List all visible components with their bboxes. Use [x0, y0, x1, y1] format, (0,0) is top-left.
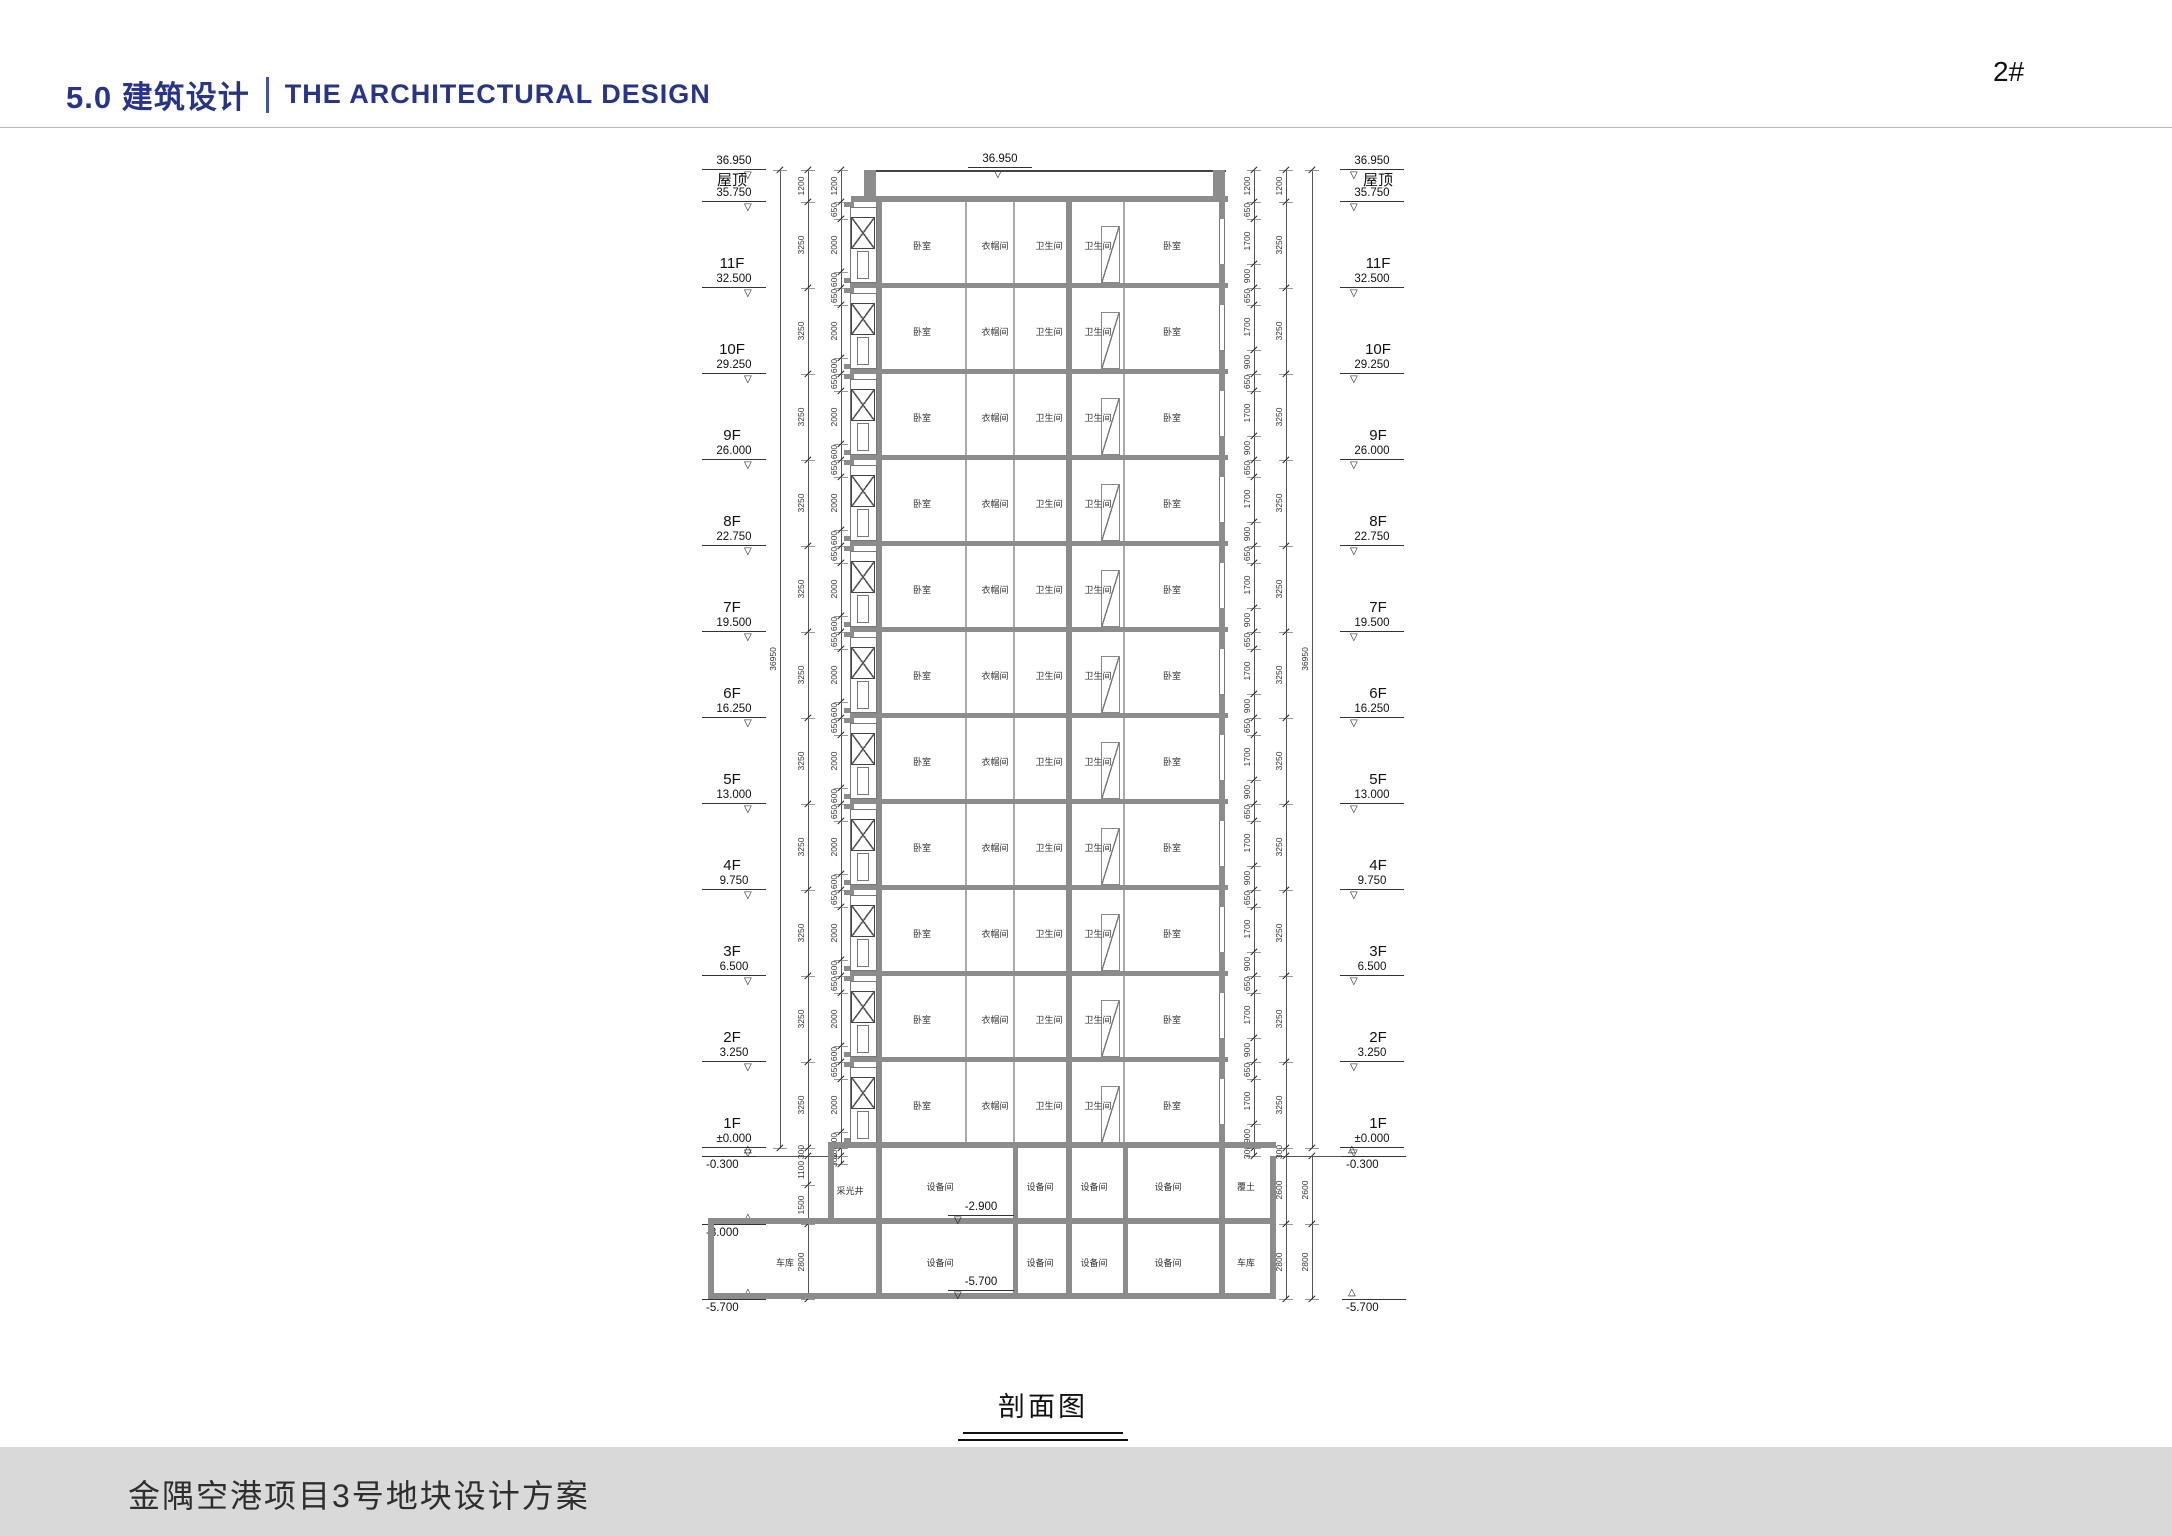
- room-label: 卧室: [913, 1013, 931, 1026]
- level-triangle-icon: ▽: [744, 375, 752, 385]
- level-elevation-left: 9.750: [702, 874, 766, 890]
- sheet-number: 2#: [1993, 56, 2024, 88]
- dim-right-inner-value: 1700: [1242, 748, 1252, 767]
- dim-left-floor-value: 1500: [796, 1195, 806, 1214]
- floor-name-right: 2F: [1346, 1029, 1410, 1046]
- level-triangle-icon: ▽: [1350, 289, 1358, 299]
- dim-left-inner-value: 2000: [829, 494, 839, 513]
- floor-slab: [850, 713, 1228, 718]
- level-triangle-icon: ▽: [744, 805, 752, 815]
- dim-left-floor-value: 3250: [796, 407, 806, 426]
- dim-right-inner-value: 1700: [1242, 662, 1252, 681]
- project-title: 金隅空港项目3号地块设计方案: [128, 1471, 590, 1517]
- dim-right-floor-value: 3250: [1274, 1009, 1284, 1028]
- dim-left-floor-value: 1100: [796, 1161, 806, 1179]
- level-elevation-left: 26.000: [702, 444, 766, 460]
- room-label: 车库: [1237, 1256, 1255, 1269]
- room-label: 卧室: [913, 927, 931, 940]
- dim-left-inner-value: 650: [829, 547, 839, 561]
- bay-window-glass: [851, 561, 875, 593]
- partition-wall: [1013, 288, 1015, 369]
- core-wall: [1066, 804, 1072, 890]
- room-label: 卧室: [913, 841, 931, 854]
- exterior-wall-right: [1219, 1038, 1225, 1062]
- dim-right-inner-value: 900: [1242, 871, 1252, 885]
- partition-wall: [1123, 804, 1125, 885]
- floor-slab: [850, 283, 1228, 288]
- dim-right-total-below-value: 2600: [1300, 1181, 1310, 1200]
- level-triangle-icon: ▽: [744, 203, 752, 213]
- dim-left-inner-value: 2000: [829, 322, 839, 341]
- floor-name-left: 11F: [700, 255, 764, 272]
- dim-left-inner-value: 600: [829, 359, 839, 373]
- partition-wall: [965, 804, 967, 885]
- bay-window-glass: [851, 905, 875, 937]
- room-label: 卫生间: [1084, 497, 1111, 510]
- floor-name-right: 6F: [1346, 685, 1410, 702]
- dim-left-floor-line: [808, 170, 809, 1299]
- partition-wall: [1013, 718, 1015, 799]
- floor-name-right: 11F: [1346, 255, 1410, 272]
- bathroom-door: [1101, 226, 1120, 283]
- window-right: [1219, 391, 1225, 436]
- exterior-wall-right: [1219, 866, 1225, 890]
- dim-left-floor-value: 2800: [796, 1252, 806, 1271]
- dim-right-inner-value: 1700: [1242, 920, 1252, 939]
- room-label: 卫生间: [1084, 583, 1111, 596]
- section-title-cn: 5.0 建筑设计: [66, 72, 250, 117]
- dim-right-inner-value: 650: [1242, 203, 1252, 217]
- partition-wall: [1013, 460, 1015, 541]
- drawing-caption: 剖面图: [958, 1385, 1128, 1441]
- room-label: 卫生间: [1035, 927, 1062, 940]
- room-label: 设备间: [1026, 1180, 1053, 1193]
- window-right: [1219, 563, 1225, 608]
- dim-right-inner-line: [1254, 170, 1255, 1156]
- exterior-wall-right: [1219, 976, 1225, 993]
- bay-window-glass: [851, 303, 875, 335]
- room-label: 卧室: [1163, 411, 1181, 424]
- dim-right-inner-value: 1700: [1242, 404, 1252, 423]
- bathroom-door: [1101, 742, 1120, 799]
- exterior-wall-right: [1219, 264, 1225, 288]
- core-wall: [1066, 546, 1072, 632]
- partition-wall: [1013, 374, 1015, 455]
- dim-left-inner-value: 650: [829, 461, 839, 475]
- room-label: 卫生间: [1084, 755, 1111, 768]
- dim-left-inner-value: 600: [829, 961, 839, 975]
- dim-left-floor-value: 3250: [796, 751, 806, 770]
- caption-underline-2: [958, 1439, 1128, 1441]
- header-rule: [0, 127, 2172, 128]
- dim-left-inner-value: 650: [829, 633, 839, 647]
- floor-name-left: 4F: [700, 857, 764, 874]
- core-wall: [1066, 202, 1072, 288]
- window-right: [1219, 993, 1225, 1038]
- level-elevation-left: 35.750: [702, 186, 766, 202]
- dim-right-floor-value: 3250: [1274, 579, 1284, 598]
- ground-floor-slab: [828, 1142, 1276, 1148]
- room-label: 衣帽间: [981, 1013, 1008, 1026]
- dim-left-floor-value: 3250: [796, 1095, 806, 1114]
- basement-b2-floor-slab: [708, 1293, 1276, 1299]
- bathroom-door: [1101, 398, 1120, 455]
- ground-line-left: [756, 1156, 828, 1158]
- exterior-wall-right: [1219, 694, 1225, 718]
- dim-left-inner-value: 2000: [829, 752, 839, 771]
- dim-left-floor-value: 1200: [796, 176, 806, 195]
- level-triangle-icon: ▽: [744, 547, 752, 557]
- core-wall: [1066, 460, 1072, 546]
- bathroom-door: [1101, 1086, 1120, 1143]
- level-triangle-icon: ▽: [1350, 461, 1358, 471]
- level-elevation-right: 36.950: [1340, 154, 1404, 170]
- floor-name-left: 9F: [700, 427, 764, 444]
- dim-right-inner-value: 650: [1242, 805, 1252, 819]
- exterior-wall-right: [1219, 608, 1225, 632]
- dim-left-total-value: 36950: [768, 647, 778, 671]
- room-label: 卫生间: [1084, 325, 1111, 338]
- room-label: 卫生间: [1084, 669, 1111, 682]
- dim-right-inner-value: 1700: [1242, 1006, 1252, 1025]
- room-label: 卫生间: [1035, 239, 1062, 252]
- core-wall: [1066, 1062, 1072, 1148]
- bathroom-door: [1101, 484, 1120, 541]
- partition-wall: [965, 460, 967, 541]
- bay-window-panel: [857, 939, 869, 967]
- room-label: 卧室: [1163, 927, 1181, 940]
- dim-left-inner-value: 650: [829, 977, 839, 991]
- partition-wall: [965, 202, 967, 283]
- dim-left-inner-value: 650: [829, 1063, 839, 1077]
- partition-wall: [965, 632, 967, 713]
- room-label: 卫生间: [1084, 841, 1111, 854]
- page-footer: 金隅空港项目3号地块设计方案: [0, 1447, 2172, 1536]
- level-elevation-right: 26.000: [1340, 444, 1404, 460]
- partition-wall: [1123, 890, 1125, 971]
- partition-wall: [1123, 202, 1125, 283]
- level-triangle-icon: ▽: [744, 719, 752, 729]
- room-label: 卫生间: [1035, 411, 1062, 424]
- exterior-wall-right: [1219, 718, 1225, 735]
- room-label: 卫生间: [1035, 755, 1062, 768]
- room-label: 卫生间: [1035, 497, 1062, 510]
- level-elevation-right: 19.500: [1340, 616, 1404, 632]
- level-triangle-icon: △: [1348, 1145, 1356, 1155]
- exterior-wall-right: [1219, 632, 1225, 649]
- level-elevation-b2: -5.700: [948, 1275, 1014, 1291]
- exterior-wall-right: [1219, 350, 1225, 374]
- window-right: [1219, 735, 1225, 780]
- dim-left-floor-value: 3250: [796, 493, 806, 512]
- dim-left-total-line: [780, 170, 781, 1148]
- core-wall: [1066, 890, 1072, 976]
- partition-wall: [1123, 718, 1125, 799]
- room-label: 卧室: [1163, 239, 1181, 252]
- dim-right-floor-value: 3250: [1274, 493, 1284, 512]
- room-label: 覆土: [1237, 1180, 1255, 1193]
- dim-right-inner-value: 650: [1242, 547, 1252, 561]
- dim-right-floor-value: 3250: [1274, 837, 1284, 856]
- exterior-wall-right: [1219, 952, 1225, 976]
- floor-slab: [850, 885, 1228, 890]
- bay-window-glass: [851, 475, 875, 507]
- basement-outer-wall-left: [708, 1224, 714, 1298]
- dim-right-inner-value: 900: [1242, 441, 1252, 455]
- floor-name-left: 3F: [700, 943, 764, 960]
- level-elevation-left: 3.250: [702, 1046, 766, 1062]
- partition-wall: [1123, 546, 1125, 627]
- dim-right-inner-value: 900: [1242, 269, 1252, 283]
- dim-right-floor-value: 3250: [1274, 407, 1284, 426]
- bathroom-door: [1101, 914, 1120, 971]
- dim-left-inner-value: 650: [829, 719, 839, 733]
- room-label: 设备间: [926, 1180, 953, 1193]
- room-label: 卧室: [1163, 841, 1181, 854]
- room-label: 卧室: [1163, 1013, 1181, 1026]
- partition-wall: [1123, 374, 1125, 455]
- dim-left-inner-value: 650: [829, 203, 839, 217]
- dim-right-inner-value: 1700: [1242, 1092, 1252, 1111]
- floor-name-right: 3F: [1346, 943, 1410, 960]
- bathroom-door: [1101, 828, 1120, 885]
- window-right: [1219, 477, 1225, 522]
- dim-right-inner-value: 650: [1242, 977, 1252, 991]
- dim-right-total-below-line: [1312, 1156, 1313, 1299]
- room-label: 卫生间: [1084, 1013, 1111, 1026]
- bay-window-panel: [857, 767, 869, 795]
- dim-left-inner-value: 600: [829, 875, 839, 889]
- room-label: 卫生间: [1084, 1099, 1111, 1112]
- core-wall: [1066, 632, 1072, 718]
- floor-name-left: 2F: [700, 1029, 764, 1046]
- title-separator: [266, 77, 269, 113]
- bay-window-glass: [851, 1077, 875, 1109]
- level-triangle-icon: △: [1348, 1288, 1356, 1298]
- level-elevation-left: 19.500: [702, 616, 766, 632]
- room-label: 车库: [776, 1256, 794, 1269]
- level-elevation-right: 29.250: [1340, 358, 1404, 374]
- bathroom-door: [1101, 1000, 1120, 1057]
- floor-slab: [850, 971, 1228, 976]
- bay-window-glass: [851, 647, 875, 679]
- level-triangle-icon: ▽: [1350, 633, 1358, 643]
- room-label: 衣帽间: [981, 841, 1008, 854]
- dim-right-inner-value: 900: [1242, 527, 1252, 541]
- dim-left-inner-value: 650: [829, 805, 839, 819]
- partition-wall: [1013, 202, 1015, 283]
- dim-left-inner-value: 2000: [829, 838, 839, 857]
- dim-right-floor-value: 3250: [1274, 923, 1284, 942]
- level-triangle-icon: ▽: [744, 1063, 752, 1073]
- page-title: 5.0 建筑设计 THE ARCHITECTURAL DESIGN: [66, 72, 711, 117]
- dim-right-inner-value: 900: [1242, 613, 1252, 627]
- dim-right-inner-value: 1700: [1242, 834, 1252, 853]
- level-triangle-icon: ▽: [1350, 805, 1358, 815]
- dim-right-inner-value: 650: [1242, 633, 1252, 647]
- dim-left-inner-value: 600: [829, 617, 839, 631]
- room-label: 卫生间: [1035, 841, 1062, 854]
- floor-name-right: 8F: [1346, 513, 1410, 530]
- bathroom-door: [1101, 656, 1120, 713]
- bay-window-panel: [857, 681, 869, 709]
- room-label: 设备间: [1154, 1256, 1181, 1269]
- bay-window-glass: [851, 217, 875, 249]
- level-elevation-right: -0.300: [1342, 1156, 1406, 1172]
- floor-name-right: 4F: [1346, 857, 1410, 874]
- dim-right-inner-value: 900: [1242, 1043, 1252, 1057]
- room-label: 卧室: [1163, 583, 1181, 596]
- dim-left-inner-value: 2000: [829, 580, 839, 599]
- dim-left-inner-value: 600: [829, 273, 839, 287]
- exterior-wall-right: [1219, 436, 1225, 460]
- room-label: 卧室: [913, 755, 931, 768]
- level-elevation-left: 29.250: [702, 358, 766, 374]
- level-triangle-icon: ▽: [744, 977, 752, 987]
- dim-left-floor-value: 3250: [796, 321, 806, 340]
- dim-left-inner-value: 1200: [829, 176, 839, 195]
- floor-name-right: 7F: [1346, 599, 1410, 616]
- level-elevation-left: 36.950: [702, 154, 766, 170]
- room-label: 衣帽间: [981, 239, 1008, 252]
- floor-slab: [850, 369, 1228, 374]
- bay-window-glass: [851, 733, 875, 765]
- room-label: 设备间: [1154, 1180, 1181, 1193]
- partition-wall: [1123, 1062, 1125, 1143]
- dim-left-floor-value: 3250: [796, 235, 806, 254]
- room-label: 卫生间: [1035, 669, 1062, 682]
- dim-right-inner-value: 1700: [1242, 576, 1252, 595]
- basement-outer-wall-right: [1270, 1156, 1276, 1299]
- room-label: 卧室: [913, 411, 931, 424]
- dim-right-inner-value: 900: [1242, 355, 1252, 369]
- bay-window-glass: [851, 991, 875, 1023]
- room-label: 卧室: [913, 583, 931, 596]
- level-elevation-right: 35.750: [1340, 186, 1404, 202]
- dim-right-inner-value: 1700: [1242, 232, 1252, 251]
- floor-name-right: 5F: [1346, 771, 1410, 788]
- room-label: 衣帽间: [981, 669, 1008, 682]
- window-right: [1219, 305, 1225, 350]
- dim-left-inner-value: 2000: [829, 408, 839, 427]
- dim-left-inner-value: 650: [829, 375, 839, 389]
- level-triangle-icon: ▽: [954, 1216, 962, 1226]
- floor-name-right: 1F: [1346, 1115, 1410, 1132]
- level-triangle-icon: ▽: [1350, 719, 1358, 729]
- dim-left-floor-value: 3250: [796, 579, 806, 598]
- dim-left-inner-value: 600: [829, 445, 839, 459]
- partition-wall: [965, 718, 967, 799]
- bathroom-door: [1101, 570, 1120, 627]
- dim-right-inner-value: 1200: [1242, 176, 1252, 195]
- lightwell-wall: [828, 1148, 834, 1225]
- room-label: 卫生间: [1084, 411, 1111, 424]
- room-label: 卧室: [913, 239, 931, 252]
- dim-right-inner-value: 650: [1242, 719, 1252, 733]
- window-right: [1219, 1079, 1225, 1124]
- window-right: [1219, 821, 1225, 866]
- floor-name-right: 9F: [1346, 427, 1410, 444]
- level-triangle-icon: ▽: [1350, 375, 1358, 385]
- level-triangle-icon: ▽: [744, 633, 752, 643]
- level-elevation-left: 22.750: [702, 530, 766, 546]
- exterior-wall-right: [1219, 780, 1225, 804]
- floor-name-left: 1F: [700, 1115, 764, 1132]
- exterior-wall-right: [1219, 288, 1225, 305]
- caption-underline-1: [963, 1432, 1123, 1434]
- dim-right-total-value: 36950: [1300, 647, 1310, 671]
- dim-right-floor-line: [1286, 170, 1287, 1299]
- level-triangle-icon: ▽: [1350, 977, 1358, 987]
- partition-wall: [1013, 976, 1015, 1057]
- partition-wall: [965, 374, 967, 455]
- dim-left-floor-value: 3250: [796, 837, 806, 856]
- dim-right-inner-value: 900: [1242, 699, 1252, 713]
- dim-left-inner-value: 2000: [829, 236, 839, 255]
- level-elevation-right: 22.750: [1340, 530, 1404, 546]
- partition-wall: [965, 1062, 967, 1143]
- level-elevation-right: -5.700: [1342, 1299, 1406, 1315]
- dim-right-inner-value: 650: [1242, 375, 1252, 389]
- level-elevation-left: ±0.000: [702, 1132, 766, 1148]
- level-elevation-left: -0.300: [702, 1156, 766, 1172]
- bay-window-panel: [857, 251, 869, 279]
- bay-window-panel: [857, 509, 869, 537]
- dim-right-inner-value: 650: [1242, 891, 1252, 905]
- level-triangle-icon: ▽: [1350, 1063, 1358, 1073]
- partition-wall: [965, 288, 967, 369]
- partition-wall: [965, 890, 967, 971]
- exterior-wall-right: [1219, 202, 1225, 219]
- room-label: 衣帽间: [981, 755, 1008, 768]
- roof-parapet-top-line: [864, 170, 1226, 172]
- bay-window-panel: [857, 853, 869, 881]
- room-label: 卧室: [1163, 325, 1181, 338]
- core-wall: [1066, 374, 1072, 460]
- dim-left-floor-value: 3250: [796, 923, 806, 942]
- partition-wall: [1013, 632, 1015, 713]
- floor-name-left: 7F: [700, 599, 764, 616]
- dim-left-floor-value: 3250: [796, 665, 806, 684]
- partition-wall: [1123, 632, 1125, 713]
- roof-slab: [851, 196, 1228, 202]
- floor-slab: [850, 799, 1228, 804]
- dim-left-inner-value: 650: [829, 891, 839, 905]
- dim-right-floor-value: 3250: [1274, 665, 1284, 684]
- floor-slab: [850, 541, 1228, 546]
- level-elevation-top: 36.950: [968, 152, 1032, 168]
- partition-wall: [1123, 288, 1125, 369]
- level-elevation-left: 16.250: [702, 702, 766, 718]
- basement-b1-floor-slab: [708, 1218, 1276, 1224]
- room-label: 卧室: [913, 325, 931, 338]
- room-label: 采光井: [836, 1184, 863, 1197]
- dim-right-inner-value: 900: [1242, 785, 1252, 799]
- level-elevation-right: 6.500: [1340, 960, 1404, 976]
- level-elevation-left: -5.700: [702, 1299, 766, 1315]
- room-label: 卫生间: [1035, 325, 1062, 338]
- room-label: 卧室: [1163, 669, 1181, 682]
- dim-right-inner-value: 900: [1242, 957, 1252, 971]
- level-elevation-right: 16.250: [1340, 702, 1404, 718]
- dim-left-inner-line: [841, 170, 842, 1164]
- level-triangle-icon: △: [744, 1145, 752, 1155]
- bay-window-panel: [857, 337, 869, 365]
- dim-left-inner-value: 2000: [829, 666, 839, 685]
- building-section-drawing: 3695012003250325032503250325032503250325…: [700, 140, 1430, 1400]
- dim-left-inner-value: 650: [829, 289, 839, 303]
- dim-right-floor-value: 3250: [1274, 751, 1284, 770]
